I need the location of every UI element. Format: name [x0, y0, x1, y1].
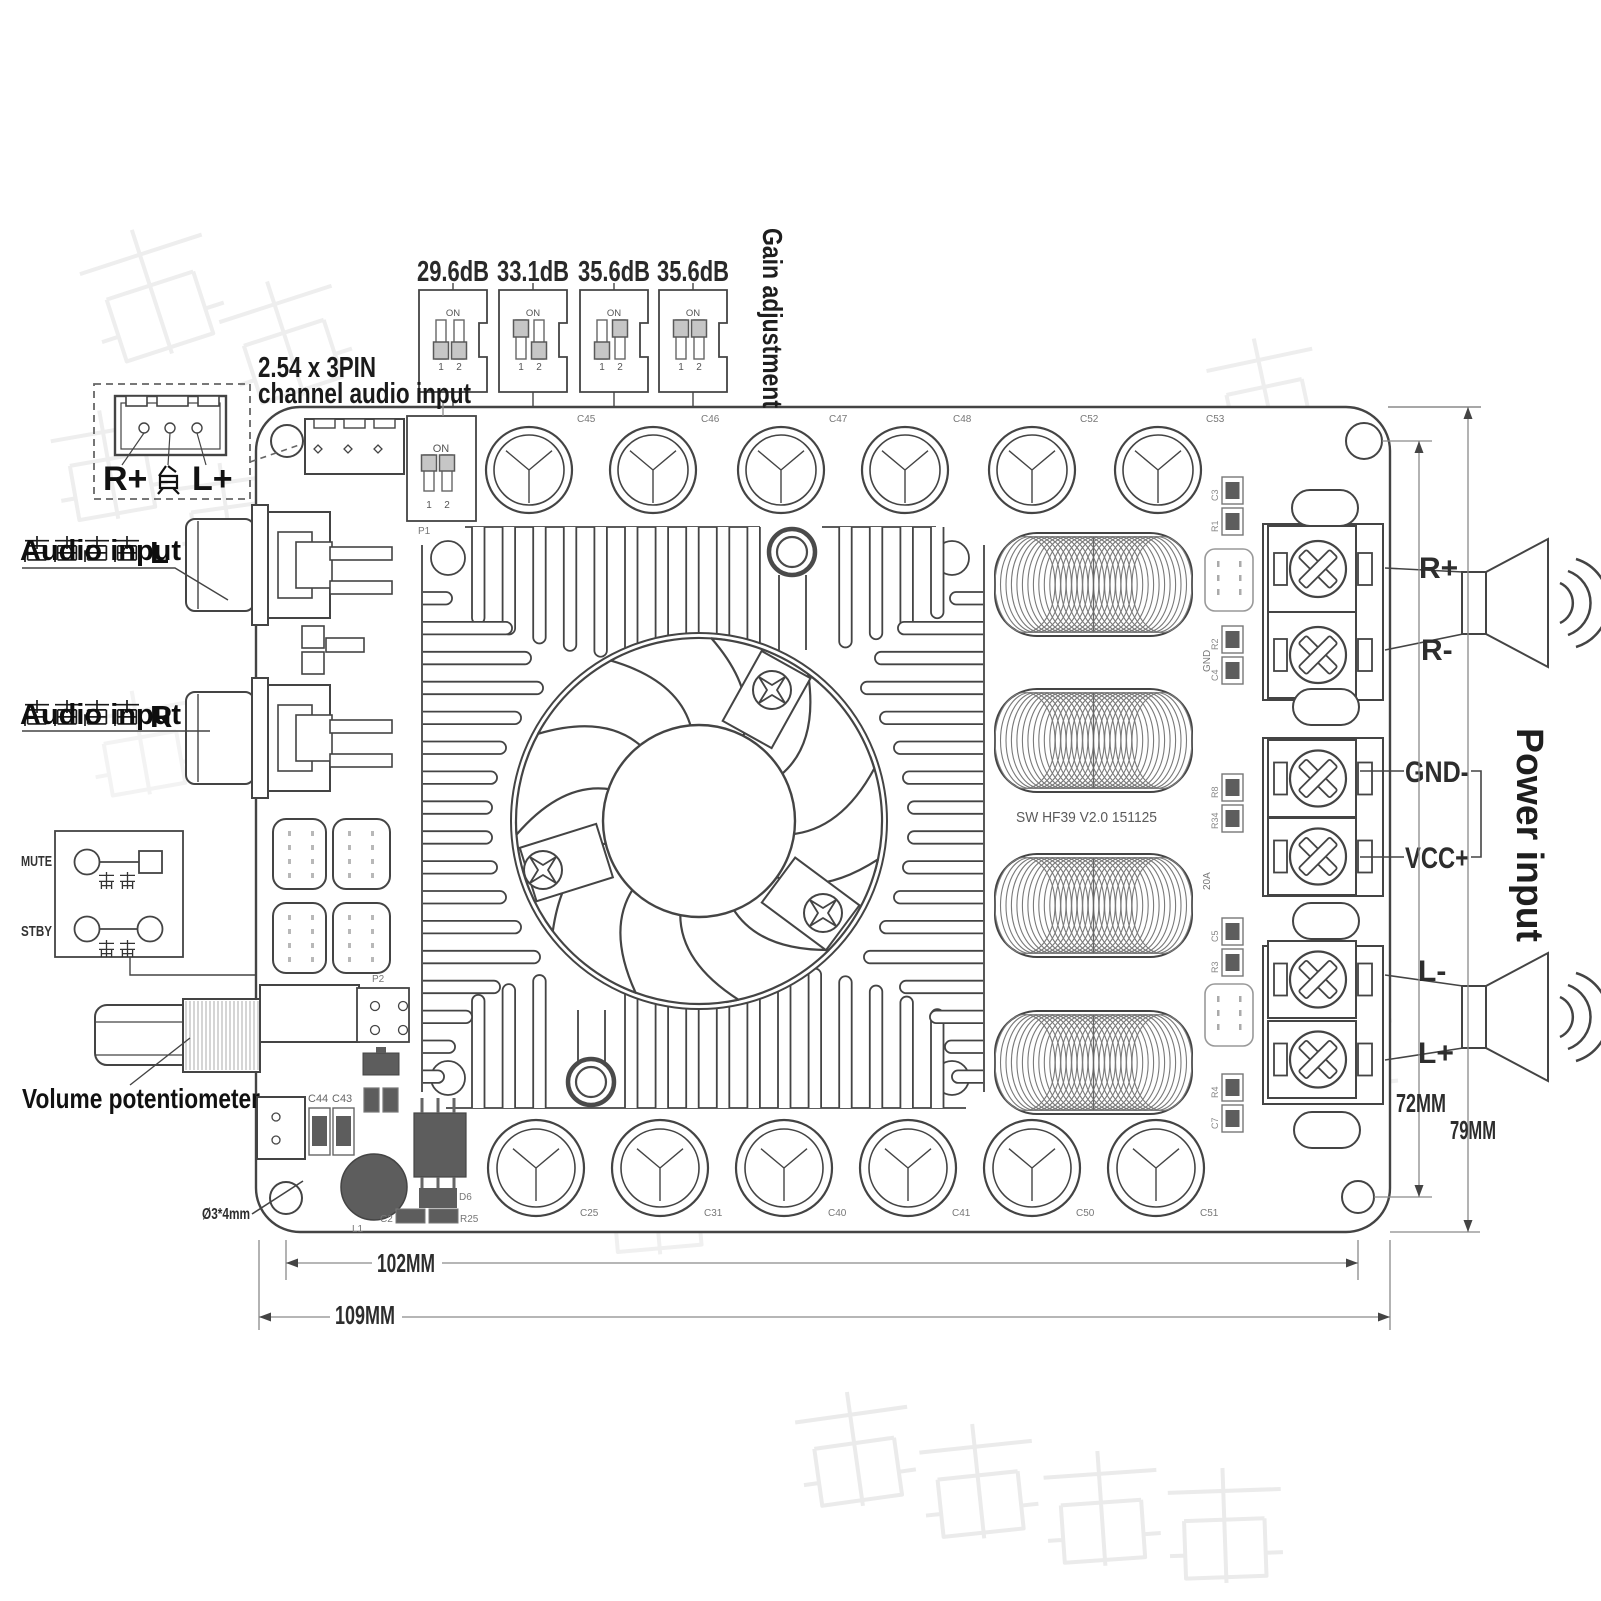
svg-text:Ø3*4mm: Ø3*4mm [202, 1206, 250, 1223]
svg-text:C51: C51 [1200, 1208, 1219, 1219]
svg-text:R: R [150, 699, 172, 734]
svg-text:20A: 20A [1202, 872, 1213, 890]
svg-text:ON: ON [526, 308, 540, 319]
svg-text:L+: L+ [192, 460, 233, 498]
svg-text:GND-: GND- [1405, 756, 1469, 789]
svg-text:VCC+: VCC+ [1405, 842, 1469, 875]
svg-text:2: 2 [444, 500, 450, 511]
svg-text:ON: ON [446, 308, 460, 319]
svg-text:C5: C5 [1210, 930, 1220, 942]
svg-text:R-: R- [1421, 634, 1453, 667]
svg-text:GND: GND [1202, 650, 1213, 672]
svg-text:C46: C46 [701, 414, 720, 425]
svg-text:C31: C31 [704, 1208, 723, 1219]
svg-text:33.1dB: 33.1dB [497, 256, 569, 288]
svg-text:R4: R4 [1210, 1086, 1220, 1098]
svg-text:R+: R+ [1419, 552, 1458, 585]
svg-text:C52: C52 [1080, 414, 1099, 425]
svg-text:2: 2 [696, 362, 702, 373]
svg-text:1: 1 [518, 362, 524, 373]
svg-text:2: 2 [456, 362, 462, 373]
svg-text:1: 1 [438, 362, 444, 373]
svg-text:R+: R+ [103, 460, 147, 498]
svg-text:C41: C41 [952, 1208, 971, 1219]
svg-text:R8: R8 [1210, 786, 1220, 798]
svg-text:R2: R2 [1210, 638, 1220, 650]
svg-text:STBY: STBY [21, 923, 52, 940]
svg-text:P1: P1 [418, 526, 431, 537]
svg-text:C48: C48 [953, 414, 972, 425]
svg-text:35.6dB: 35.6dB [657, 256, 729, 288]
svg-text:P2: P2 [372, 974, 385, 985]
svg-text:79MM: 79MM [1450, 1115, 1496, 1145]
svg-text:C7: C7 [1210, 1117, 1220, 1129]
svg-text:L+: L+ [1418, 1037, 1454, 1070]
svg-text:L-: L- [1418, 955, 1446, 988]
svg-text:ON: ON [686, 308, 700, 319]
svg-text:C25: C25 [580, 1208, 599, 1219]
svg-text:C40: C40 [828, 1208, 847, 1219]
svg-text:C2: C2 [380, 1214, 393, 1225]
svg-text:C50: C50 [1076, 1208, 1095, 1219]
svg-text:MUTE: MUTE [21, 853, 52, 870]
svg-text:2: 2 [536, 362, 542, 373]
svg-text:C43: C43 [332, 1093, 352, 1105]
svg-text:channel audio input: channel audio input [258, 378, 471, 410]
svg-text:72MM: 72MM [1396, 1088, 1446, 1118]
svg-text:C44: C44 [308, 1093, 328, 1105]
svg-text:29.6dB: 29.6dB [417, 256, 489, 288]
svg-text:C47: C47 [829, 414, 848, 425]
svg-text:C53: C53 [1206, 414, 1225, 425]
svg-text:L1: L1 [352, 1224, 364, 1235]
svg-text:ON: ON [607, 308, 621, 319]
svg-text:1: 1 [599, 362, 605, 373]
svg-text:2: 2 [617, 362, 623, 373]
svg-text:1: 1 [426, 500, 432, 511]
svg-text:L: L [150, 535, 169, 570]
svg-text:35.6dB: 35.6dB [578, 256, 650, 288]
svg-text:Power input: Power input [1508, 728, 1550, 942]
svg-text:SW HF39 V2.0 151125: SW HF39 V2.0 151125 [1016, 809, 1157, 826]
svg-text:109MM: 109MM [335, 1300, 395, 1330]
svg-text:Volume potentiometer: Volume potentiometer [22, 1083, 260, 1114]
svg-text:R34: R34 [1210, 812, 1220, 829]
svg-text:C3: C3 [1210, 489, 1220, 501]
svg-text:102MM: 102MM [377, 1248, 435, 1278]
svg-text:R1: R1 [1210, 520, 1220, 532]
svg-text:ON: ON [433, 443, 450, 455]
svg-text:Gain adjustment: Gain adjustment [757, 228, 788, 408]
svg-text:D6: D6 [459, 1192, 472, 1203]
svg-text:R25: R25 [460, 1214, 479, 1225]
svg-text:C45: C45 [577, 414, 596, 425]
svg-text:R3: R3 [1210, 961, 1220, 973]
svg-text:1: 1 [678, 362, 684, 373]
